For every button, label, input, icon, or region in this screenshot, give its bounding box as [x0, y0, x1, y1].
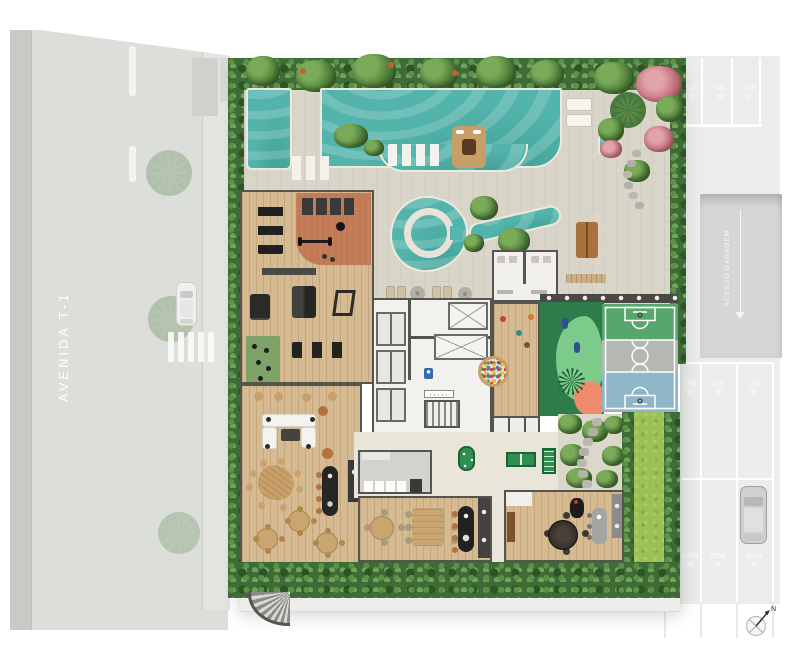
- north-label: N: [771, 606, 776, 613]
- stall-number: 105A: [709, 552, 727, 561]
- reception-desk: [424, 390, 454, 398]
- stall-line: [731, 58, 733, 126]
- stall-number: 131: [712, 84, 730, 93]
- gray-island: [592, 508, 607, 544]
- laundry-counter: [362, 452, 390, 460]
- crosswalk: [168, 332, 216, 362]
- deck-loungers: [292, 156, 334, 180]
- treadmills: [258, 202, 283, 254]
- compass: N: [736, 600, 786, 646]
- spin-bikes: [292, 342, 344, 358]
- street-median: [129, 146, 136, 182]
- stepping-stones: [592, 418, 602, 426]
- counter: [612, 494, 622, 538]
- seat-cushion: [473, 130, 481, 134]
- stall-line: [682, 362, 774, 364]
- outdoor-dining-chair: [582, 260, 594, 266]
- street-median: [129, 46, 136, 96]
- car-windshield: [180, 291, 193, 298]
- flowering-bush: [644, 126, 674, 152]
- dining-table: [316, 532, 338, 554]
- ping-pong-table: [506, 452, 536, 467]
- round-dark-table: [548, 520, 578, 550]
- pouf: [322, 448, 333, 459]
- kitchen-cabinet-wall: [478, 498, 490, 558]
- dining-chairs: [285, 518, 291, 524]
- dumbbells: [252, 344, 257, 349]
- staircase: [424, 400, 460, 428]
- laundry-cabinet: [410, 479, 422, 493]
- garden-bush: [598, 118, 624, 142]
- car-windshield: [744, 497, 763, 506]
- sofa-chaise: [301, 427, 316, 448]
- garden-bush: [604, 416, 624, 434]
- barbell: [300, 240, 330, 243]
- parking-stall-label: 104A Ⓜ: [745, 552, 763, 574]
- tree-canopy: [246, 56, 280, 86]
- storage-room: [434, 334, 488, 360]
- outdoor-dining-chairs: [569, 226, 575, 233]
- side-tables-row: [254, 392, 263, 401]
- barbell-plate: [328, 237, 332, 246]
- elevator: [376, 388, 406, 422]
- tree-canopy: [476, 56, 516, 88]
- court-green-zone: [602, 304, 678, 340]
- core-wall: [408, 300, 411, 380]
- gym-shelf: [262, 268, 316, 275]
- stretch-mat: [246, 336, 280, 382]
- garden-bench: [566, 274, 606, 283]
- vestibule: [506, 492, 532, 506]
- garden-bush: [624, 160, 650, 182]
- car-rear-window: [180, 319, 193, 324]
- garden-bush: [656, 96, 684, 122]
- in-pool-loungers: [388, 144, 440, 166]
- parking-stall-label: 104 Ⓜ: [745, 380, 763, 402]
- parking-stall-label: 105A Ⓜ: [709, 552, 727, 574]
- squat-rack: [250, 294, 270, 320]
- stall-number: 106A: [681, 552, 699, 561]
- parking-stall-label: 106 Ⓜ: [681, 380, 699, 402]
- ramp-arrow-line: [740, 210, 741, 312]
- poolside-bush: [334, 124, 368, 148]
- coffee-table: [281, 429, 300, 441]
- stall-tag: Ⓜ: [745, 561, 763, 570]
- armchair-accent: [574, 500, 578, 504]
- site-plan-canvas: AVENIDA T-1 130 Ⓜ 131 Ⓜ 132 Ⓜ ACESSO GAR…: [0, 0, 800, 664]
- stall-line: [682, 124, 762, 127]
- dining-chairs: [253, 536, 259, 542]
- bathroom-fixtures: [497, 256, 519, 263]
- seat-cushion: [456, 130, 464, 134]
- stall-number: 104A: [745, 552, 763, 561]
- dining-table: [256, 528, 278, 550]
- garden-bush: [602, 446, 624, 466]
- stall-tag: Ⓜ: [709, 389, 727, 398]
- cable-machine: [292, 286, 316, 318]
- stall-number: 106: [681, 380, 699, 389]
- street-car: [176, 282, 197, 326]
- street-far-strip: [10, 30, 32, 630]
- stall-line: [682, 478, 774, 480]
- sofa-cushions: [266, 417, 271, 422]
- stall-line: [701, 58, 703, 126]
- fire-pit-lounge: [452, 126, 486, 168]
- tree-canopy: [352, 54, 396, 88]
- stall-line: [736, 362, 738, 602]
- outdoor-dining-chair: [582, 214, 594, 220]
- weight-stations: [302, 198, 354, 215]
- round-table: [370, 516, 394, 540]
- washing-machines: [364, 481, 408, 492]
- barbell-plate: [298, 237, 302, 246]
- tree-canopy: [530, 60, 564, 88]
- daybed: [566, 98, 592, 111]
- street-name-label: AVENIDA T-1: [56, 262, 84, 432]
- street-tree: [158, 512, 200, 554]
- splash-walkway-ring: [404, 208, 454, 258]
- child-figure: [574, 342, 580, 353]
- car-roof: [744, 508, 763, 532]
- flower-accent: [452, 70, 458, 76]
- toys: [500, 316, 506, 322]
- stall-tag: Ⓜ: [681, 389, 699, 398]
- flower-accent: [300, 68, 306, 74]
- daybed: [566, 114, 592, 127]
- car-hood: [744, 534, 763, 541]
- stall-line: [759, 58, 761, 126]
- driveway-ramp-arc: [248, 592, 290, 626]
- car-roof: [180, 300, 193, 317]
- sports-court: [602, 304, 678, 412]
- accessibility-icon: [424, 368, 433, 379]
- foosball-table: [542, 448, 556, 474]
- parking-stall-label: 132 Ⓜ: [740, 84, 758, 106]
- bathroom-partition: [523, 252, 526, 284]
- court-gray-zone: [602, 340, 678, 372]
- stall-tag: Ⓜ: [709, 561, 727, 570]
- bathroom-bench: [497, 290, 513, 294]
- stall-number: 104: [745, 380, 763, 389]
- elevator: [376, 350, 406, 384]
- dining-table: [288, 510, 310, 532]
- adjacent-building: [192, 58, 218, 116]
- child-figure: [562, 318, 568, 329]
- training-rack: [332, 290, 356, 316]
- garden-bush: [596, 470, 618, 488]
- bathroom-fixtures: [531, 256, 553, 263]
- lap-pool: [246, 88, 292, 170]
- garden-bush: [594, 62, 634, 94]
- stall-number: 132: [740, 84, 758, 93]
- stepping-stones: [632, 150, 641, 157]
- dining-chairs: [313, 540, 319, 546]
- garden-bush: [558, 414, 582, 434]
- stall-number: 105: [709, 380, 727, 389]
- flower-accent: [388, 62, 394, 68]
- communal-table-chairs: [250, 470, 257, 477]
- sidewalk-strip: [240, 598, 680, 612]
- hedge-bottom: [228, 562, 680, 598]
- fire-table: [462, 139, 476, 155]
- garden-bush: [566, 468, 592, 488]
- river-bank-bush: [470, 196, 498, 220]
- playground-tree: [558, 368, 585, 395]
- stall-tag: Ⓜ: [745, 389, 763, 398]
- ramp-down-arrow-icon: [735, 312, 745, 319]
- stall-line: [772, 362, 774, 602]
- splash-ring-gap: [450, 226, 462, 240]
- pouf: [318, 406, 328, 416]
- poolside-bush: [364, 140, 384, 156]
- rect-table-chairs: [405, 511, 412, 518]
- parking-stall-label: 106A Ⓜ: [681, 552, 699, 574]
- kitchen-island: [458, 506, 474, 552]
- garage-ramp: [700, 194, 782, 358]
- parking-stall-label: 105 Ⓜ: [709, 380, 727, 402]
- storage-room: [448, 302, 488, 330]
- round-table-chairs: [364, 524, 371, 531]
- ramp-label: ACESSO GARAGEM: [724, 226, 738, 310]
- river-bank-bush: [464, 234, 484, 252]
- garden-bush: [560, 444, 584, 466]
- court-blue-zone: [602, 372, 678, 412]
- poker-table: [458, 446, 475, 471]
- bar-island: [322, 466, 338, 516]
- flowering-bush: [600, 140, 622, 158]
- parking-stall-label: 131 Ⓜ: [712, 84, 730, 106]
- stall-tag: Ⓜ: [712, 93, 730, 102]
- elevator: [376, 312, 406, 346]
- outdoor-dining-table: [576, 222, 598, 258]
- sofa-section: [262, 427, 277, 449]
- stall-tag: Ⓜ: [740, 93, 758, 102]
- stall-tag: Ⓜ: [681, 561, 699, 570]
- lawn: [634, 412, 664, 566]
- sideboard: [507, 512, 515, 542]
- ball-pit: [478, 356, 509, 387]
- stall-line: [700, 362, 702, 602]
- hedge-lawn-right: [664, 412, 680, 566]
- parked-car: [740, 486, 767, 544]
- rect-dining-table: [412, 508, 444, 546]
- street-sidewalk: [202, 30, 230, 610]
- kettlebell: [336, 222, 345, 231]
- street-tree: [146, 150, 192, 196]
